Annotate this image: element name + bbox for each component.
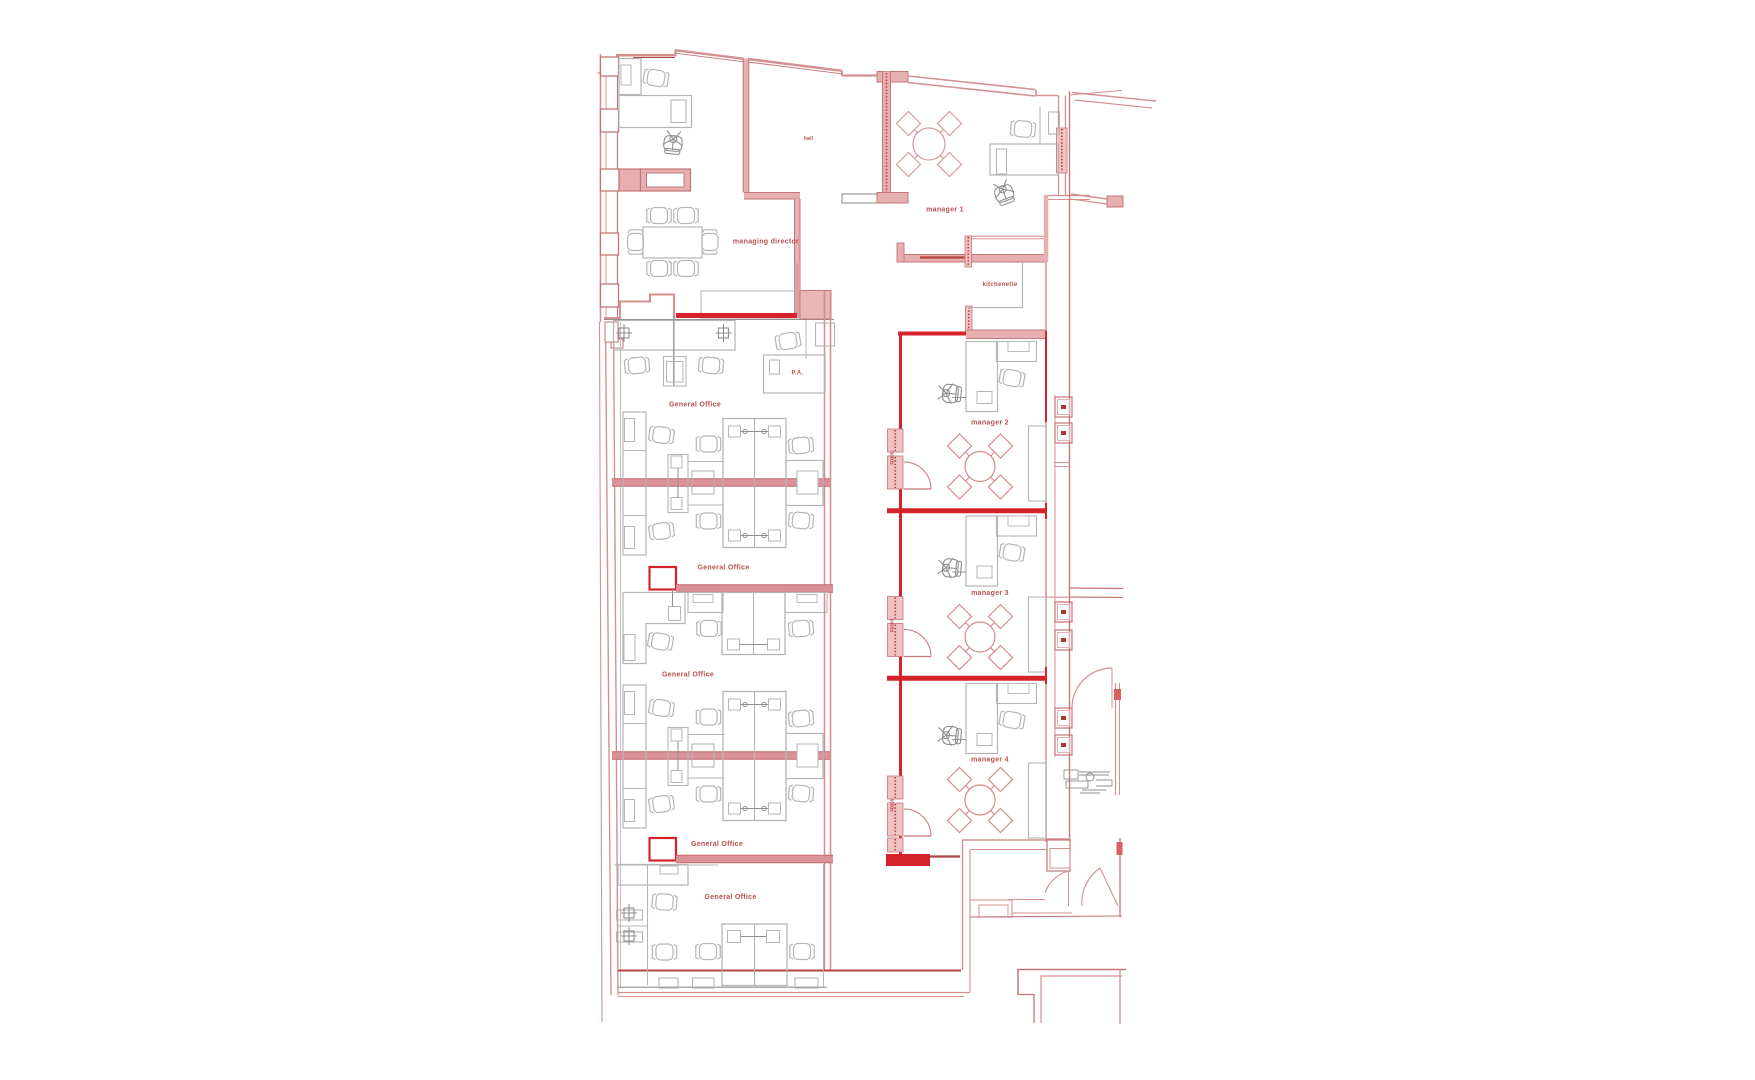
svg-text:manager 3: manager 3 [971,590,1009,597]
svg-text:manager 4: manager 4 [971,757,1009,764]
svg-text:General Office: General Office [691,841,743,848]
svg-text:manager 1: manager 1 [926,207,964,214]
svg-text:hall: hall [804,136,814,142]
svg-text:managing director: managing director [733,239,799,246]
svg-text:General Office: General Office [662,672,714,679]
svg-text:manager 2: manager 2 [971,420,1009,427]
svg-text:FD30S: FD30S [890,619,895,632]
svg-text:General Office: General Office [697,565,749,572]
svg-text:General Office: General Office [669,402,721,409]
svg-text:General Office: General Office [704,894,756,901]
svg-text:P.A.: P.A. [791,371,803,377]
svg-text:kitchenette: kitchenette [983,282,1018,288]
svg-text:FD30S: FD30S [890,798,895,811]
svg-text:FD30S: FD30S [890,451,895,464]
